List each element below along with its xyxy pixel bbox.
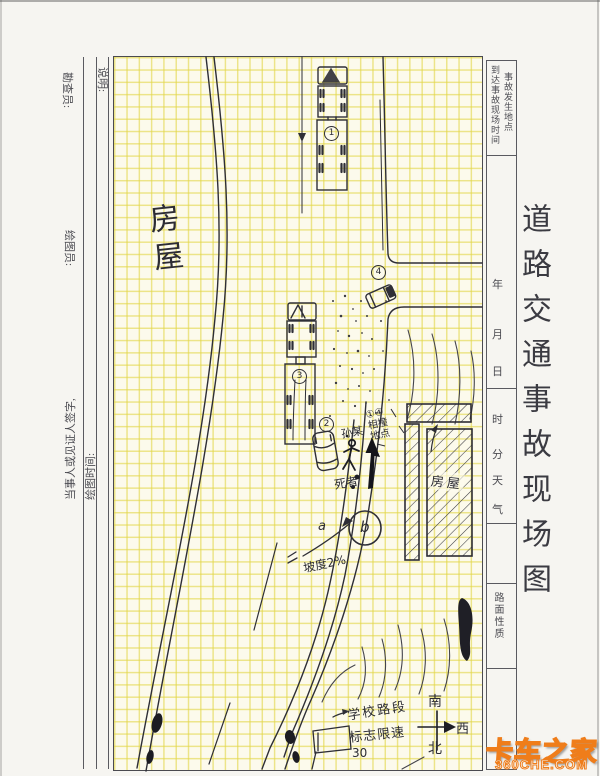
arrival-time-label: 到达事故现场时间 (489, 65, 500, 153)
scan-edge-left (0, 0, 2, 776)
vehicle-1-mark: 1 (324, 126, 339, 141)
road-surface-label: 路面性质 (490, 592, 505, 640)
day-label: 日 (492, 363, 503, 379)
right-col-rule-1 (486, 60, 487, 770)
scan-edge-top (0, 0, 600, 2)
house-right-label: 房屋 (429, 470, 465, 492)
drawer-label: 绘图员: (62, 230, 78, 266)
form-title: 道路交通事故现场图 (511, 203, 555, 608)
vehicle-3-mark: 3 (292, 369, 307, 384)
left-rule-2 (96, 57, 97, 769)
house-left-label: 房屋 (137, 201, 189, 281)
point-b-label: b (360, 518, 370, 536)
left-rule-1 (83, 57, 84, 769)
right-cell-line-6 (486, 668, 517, 669)
note-label: 说明: (95, 67, 111, 92)
speed-limit-value: 30 (352, 746, 367, 760)
scan-edge-right (597, 0, 599, 776)
watermark-site: 360CHE.COM (495, 757, 588, 772)
month-label: 月 (492, 326, 503, 342)
right-cell-line-1 (486, 60, 517, 61)
right-cell-line-2 (486, 155, 517, 156)
vehicle-2-mark: 2 (319, 417, 334, 432)
accident-place-label: 事故发生地点 (502, 72, 513, 148)
grid-paper (113, 56, 483, 771)
party-sign-label: 当事人或见证人签字, (62, 398, 78, 500)
compass-west-label: 西 (456, 718, 469, 737)
hour-label: 时 (492, 411, 503, 427)
year-label: 年 (492, 276, 503, 292)
weather-label-1: 天 (492, 472, 503, 488)
compass-north-label: 北 (428, 738, 442, 758)
point-a-label: a (318, 519, 326, 534)
vehicle-4-mark: 4 (371, 265, 386, 280)
surveyor-label: 勘查员: (60, 72, 76, 108)
minute-label: 分 (492, 446, 503, 462)
accident-scene-form: 勘查员: 绘图员: 说明: 当事人或见证人签字, 绘图时间: (0, 0, 600, 776)
draw-time-label: 绘图时间: (82, 453, 98, 500)
weather-label-2: 气 (492, 501, 503, 517)
compass-south-label: 南 (428, 691, 442, 711)
left-rule-3 (108, 57, 109, 769)
